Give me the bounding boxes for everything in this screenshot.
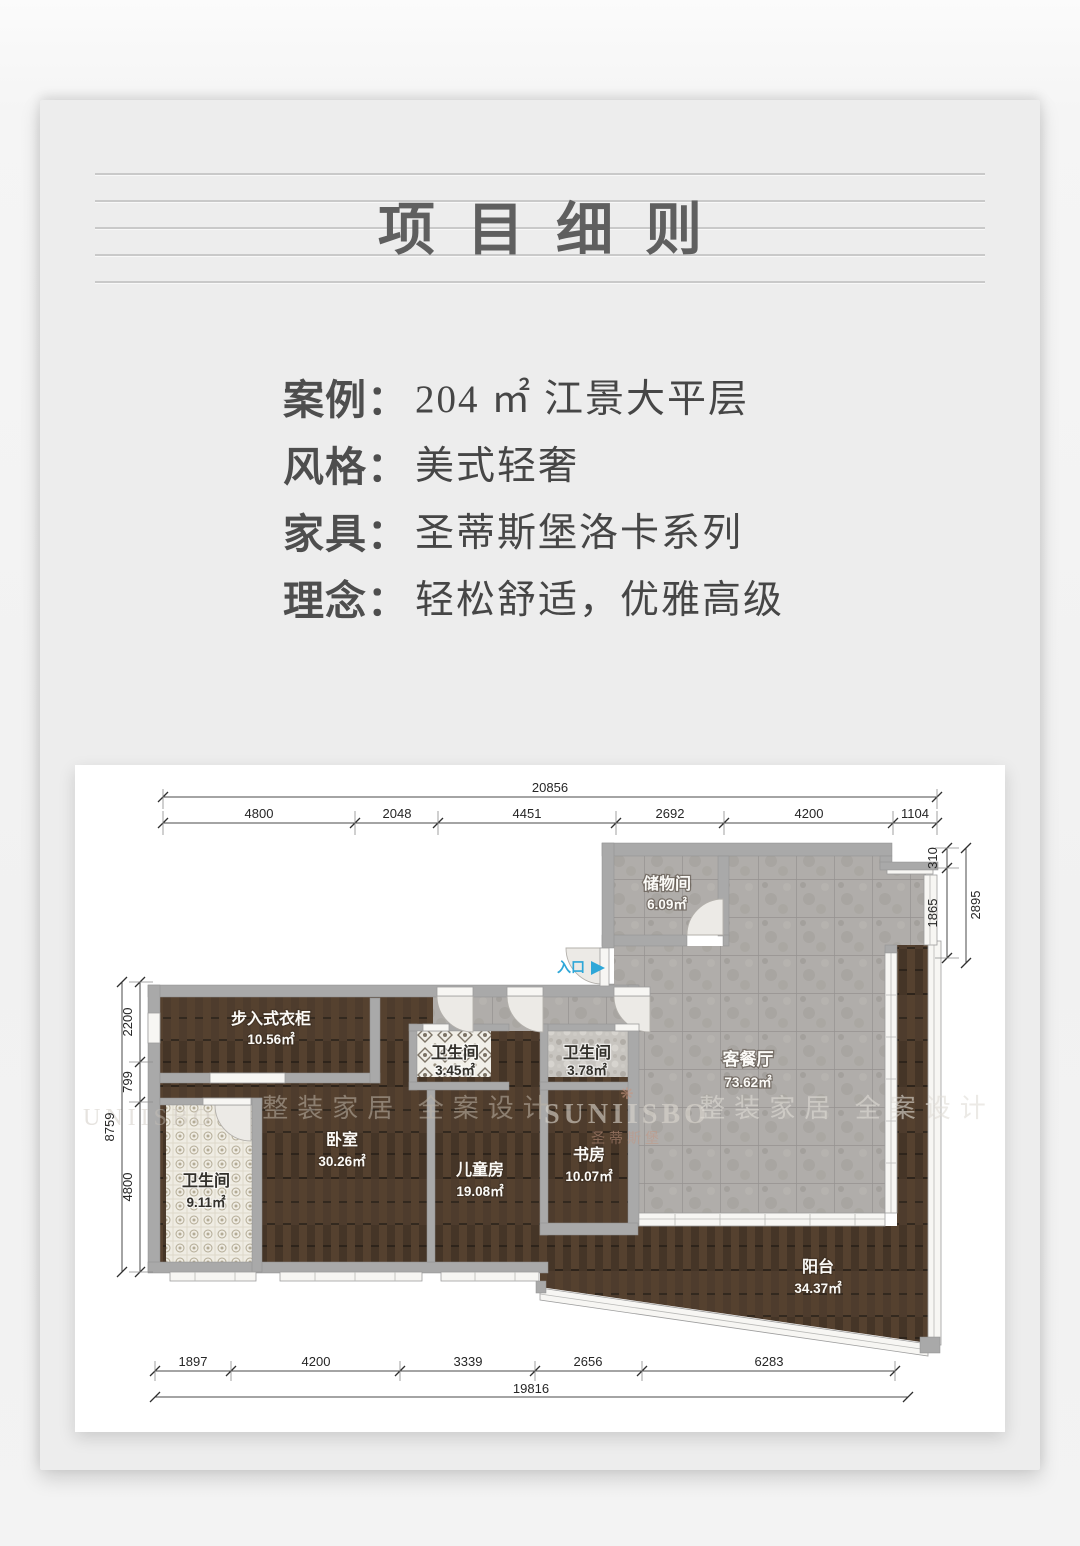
bathroom-345-door-opening [423, 1024, 449, 1031]
detail-row-case: 案例：204 ㎡ 江景大平层 [283, 362, 784, 429]
title-rule-line [95, 281, 985, 283]
door-leaf [614, 987, 650, 996]
dim-top-total: 20856 [532, 780, 568, 795]
detail-colon: ： [367, 366, 409, 426]
dim-bottom-seg: 4200 [302, 1354, 331, 1369]
dim-top-seg: 4200 [795, 806, 824, 821]
detail-row-style: 风格：美式轻奢 [283, 429, 784, 496]
title-rule-line [95, 173, 985, 175]
room-area-storage: 6.09㎡ [647, 896, 687, 912]
room-area-balcony: 34.37㎡ [794, 1280, 842, 1296]
detail-label: 理念 [283, 567, 367, 627]
detail-row-concept: 理念：轻松舒适，优雅高级 [283, 563, 784, 630]
room-label-bathroom-345: 卫生间 [431, 1043, 479, 1062]
detail-row-furniture: 家具：圣蒂斯堡洛卡系列 [283, 496, 784, 563]
room-label-study: 书房 [573, 1145, 605, 1164]
door-leaf [203, 1098, 251, 1105]
detail-value: 204 ㎡ 江景大平层 [415, 368, 749, 424]
detail-value: 轻松舒适，优雅高级 [415, 569, 784, 625]
dim-right-seg: 1865 [925, 899, 940, 928]
watermark-left: 整装家居 全案设计 [262, 1094, 558, 1123]
floorplan-card: UNIISBO 整装家居 全案设计 ❋ SUNIISBO 圣蒂斯堡 整装家居 全… [75, 765, 1005, 1432]
room-label-bathroom-378: 卫生间 [563, 1043, 611, 1062]
detail-colon: ： [367, 567, 409, 627]
dim-bottom-seg: 1897 [179, 1354, 208, 1369]
closet-opening [210, 1073, 285, 1083]
dim-bottom-total: 19816 [513, 1381, 549, 1396]
room-label-bathroom-911: 卫生间 [182, 1171, 230, 1190]
room-area-living-dining: 73.62㎡ [724, 1074, 772, 1090]
balcony-corner-post [920, 1337, 940, 1353]
detail-label: 家具 [283, 500, 367, 560]
detail-colon: ： [367, 433, 409, 493]
floorplan-drawing: UNIISBO 整装家居 全案设计 ❋ SUNIISBO 圣蒂斯堡 整装家居 全… [75, 765, 1005, 1432]
dim-right-seg: 310 [925, 847, 940, 869]
dim-top-seg: 2692 [656, 806, 685, 821]
room-area-bathroom-345: 3.45㎡ [435, 1062, 475, 1078]
room-area-bedroom: 30.26㎡ [318, 1153, 366, 1169]
dim-bottom-seg: 3339 [454, 1354, 483, 1369]
dim-left-total: 8759 [102, 1113, 117, 1142]
room-label-storage: 储物间 [642, 874, 691, 893]
dim-bottom-seg: 2656 [574, 1354, 603, 1369]
dim-top-seg: 4451 [513, 806, 542, 821]
watermark-brand-sub: 圣蒂斯堡 [591, 1131, 663, 1147]
project-details: 案例：204 ㎡ 江景大平层 风格：美式轻奢 家具：圣蒂斯堡洛卡系列 理念：轻松… [283, 362, 784, 630]
detail-value: 圣蒂斯堡洛卡系列 [415, 502, 743, 558]
west-window [148, 1013, 160, 1043]
room-label-balcony: 阳台 [802, 1257, 834, 1276]
detail-label: 风格 [283, 433, 367, 493]
door-leaf [507, 987, 543, 996]
room-label-living-dining: 客餐厅 [722, 1049, 774, 1069]
room-area-bathroom-911: 9.11㎡ [186, 1194, 226, 1210]
watermark-brand: SUNIISBO [544, 1099, 710, 1130]
dim-right-total: 2895 [968, 891, 983, 920]
dim-top-seg: 4800 [245, 806, 274, 821]
room-label-kids-room: 儿童房 [455, 1160, 504, 1179]
page-title: 项目细则 [40, 184, 1040, 266]
south-window [280, 1272, 422, 1281]
dim-top-seg: 2048 [383, 806, 412, 821]
entrance-label: 入口 [557, 959, 585, 975]
room-area-kids-room: 19.08㎡ [456, 1183, 504, 1199]
door-leaf [437, 987, 473, 996]
detail-label: 案例 [283, 366, 367, 426]
watermark-right: 整装家居 全案设计 [699, 1094, 995, 1123]
room-label-bedroom: 卧室 [326, 1130, 358, 1149]
room-area-bathroom-378: 3.78㎡ [567, 1062, 607, 1078]
dim-bottom-seg: 6283 [755, 1354, 784, 1369]
content-card: 项目细则 案例：204 ㎡ 江景大平层 风格：美式轻奢 家具：圣蒂斯堡洛卡系列 … [40, 100, 1040, 1470]
balcony-left-post [536, 1281, 546, 1293]
room-label-walkin-closet: 步入式衣柜 [231, 1009, 311, 1028]
room-area-study: 10.07㎡ [565, 1168, 613, 1184]
bathroom-378-door-opening [615, 1024, 639, 1031]
south-window [170, 1272, 256, 1281]
detail-colon: ： [367, 500, 409, 560]
south-window [441, 1272, 539, 1281]
room-area-walkin-closet: 10.56㎡ [247, 1031, 295, 1047]
detail-value: 美式轻奢 [415, 435, 579, 491]
balcony-railing-right [928, 941, 941, 1345]
dim-top-seg: 1104 [901, 806, 929, 821]
